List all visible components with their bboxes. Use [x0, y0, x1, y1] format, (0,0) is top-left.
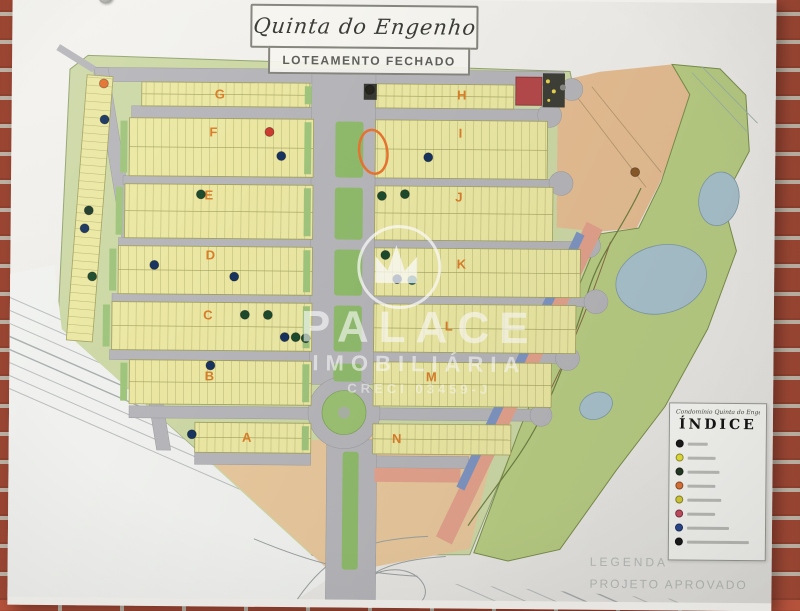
lot-status-marker [230, 272, 239, 281]
poster-content: GHFIEJDKCLBMAN Quinta do Engenho LOTEAME… [7, 0, 776, 604]
cross-street [132, 106, 314, 120]
lot-status-marker [99, 79, 108, 88]
subtitle-plate: LOTEAMENTO FECHADO [268, 46, 470, 76]
title-script-text: Quinta do Engenho [252, 14, 478, 40]
index-item-label [687, 526, 729, 529]
lot-status-marker [377, 191, 386, 200]
index-item-dot-icon [675, 523, 683, 531]
lot-status-marker [150, 260, 159, 269]
index-item [675, 464, 759, 479]
index-item-label [687, 498, 721, 501]
block-letter-h: H [457, 88, 467, 103]
lot-block-row [116, 184, 313, 240]
lot-status-marker [100, 115, 109, 124]
index-item-label [688, 442, 708, 445]
salmon-cross-road [374, 468, 460, 483]
block-letter-g: G [215, 86, 225, 101]
site-plan-poster: GHFIEJDKCLBMAN Quinta do Engenho LOTEAME… [7, 0, 776, 611]
roundabout-center [338, 407, 350, 419]
lot-status-marker [196, 190, 205, 199]
lot-block-row [195, 422, 311, 453]
block-letter-k: K [457, 257, 467, 272]
lot-status-marker [240, 310, 249, 319]
photo-of-site-plan-on-brick-wall: { "title": { "script": "Quinta do Engenh… [0, 0, 800, 600]
index-box: Condomínio Quinta do Engenho ÍNDICE [668, 402, 767, 561]
index-item-label [688, 470, 720, 473]
index-item-dot-icon [675, 467, 683, 475]
lot-status-marker [408, 276, 417, 285]
index-item [676, 450, 760, 465]
cross-street [376, 108, 542, 121]
lot-status-marker [187, 430, 196, 439]
index-item-dot-icon [675, 537, 683, 545]
index-item [675, 478, 759, 493]
culdesac-bulge [584, 290, 608, 314]
index-item-dot-icon [675, 481, 683, 489]
avenue-median [335, 187, 363, 239]
lot-status-marker [631, 168, 640, 177]
index-item-label [687, 484, 715, 487]
block-letter-a: A [242, 430, 252, 445]
lot-block-row [374, 304, 576, 354]
index-item [676, 436, 760, 451]
clubhouse-area [543, 73, 566, 107]
lot-status-marker [84, 206, 93, 215]
lot-status-marker [400, 190, 409, 199]
lot-status-marker [263, 310, 272, 319]
footer-approved-text: PROJETO APROVADO [589, 577, 747, 592]
avenue-median [342, 452, 359, 570]
block-letter-l: L [445, 318, 453, 333]
lot-status-marker [88, 272, 97, 281]
title-plate: Quinta do Engenho [250, 4, 478, 50]
index-item-label [687, 540, 749, 544]
lot-block-row [374, 248, 580, 298]
index-item-label [688, 456, 716, 459]
index-header-script: Condomínio Quinta do Engenho [676, 408, 760, 416]
block-letter-m: M [426, 369, 437, 384]
index-items [675, 436, 760, 549]
lot-status-marker [265, 127, 274, 136]
subtitle-text: LOTEAMENTO FECHADO [282, 53, 456, 69]
cross-street [129, 406, 311, 420]
block-letter-c: C [203, 307, 213, 322]
subdivision-map: GHFIEJDKCLBMAN [7, 0, 776, 604]
index-item-dot-icon [676, 453, 684, 461]
lot-status-marker [381, 250, 390, 259]
cross-street [373, 456, 469, 469]
index-item-dot-icon [675, 509, 683, 517]
block-letter-i: I [459, 126, 463, 141]
lot-status-marker [280, 333, 289, 342]
block-letter-d: D [206, 247, 216, 262]
lot-status-marker [206, 361, 215, 370]
block-letter-f: F [209, 124, 217, 139]
cross-street [195, 452, 311, 465]
lot-status-marker [393, 275, 402, 284]
index-item [675, 520, 759, 535]
index-title: ÍNDICE [676, 416, 760, 433]
avenue-median [334, 305, 362, 351]
index-item [675, 492, 759, 507]
block-letter-n: N [392, 431, 402, 446]
index-item-label [687, 512, 715, 515]
lot-status-marker [301, 334, 310, 343]
institutional-red-block [516, 77, 542, 105]
lot-block-row [373, 362, 551, 408]
index-item-dot-icon [675, 495, 683, 503]
lot-status-marker [277, 151, 286, 160]
block-letter-j: J [455, 190, 462, 205]
avenue-median [334, 249, 362, 295]
lot-block-row [120, 360, 311, 406]
lot-status-marker [424, 153, 433, 162]
footer-legend-text: LEGENDA [590, 555, 668, 570]
lot-status-marker [80, 224, 89, 233]
lot-status-marker [365, 85, 374, 94]
index-item-dot-icon [676, 439, 684, 447]
avenue-median [333, 363, 361, 381]
block-letter-b: B [205, 368, 215, 383]
lot-block-row [376, 84, 514, 109]
block-letter-e: E [205, 187, 214, 202]
lot-block-row [142, 82, 312, 107]
lot-status-marker [291, 333, 300, 342]
index-item [675, 506, 759, 521]
index-item [675, 534, 759, 549]
